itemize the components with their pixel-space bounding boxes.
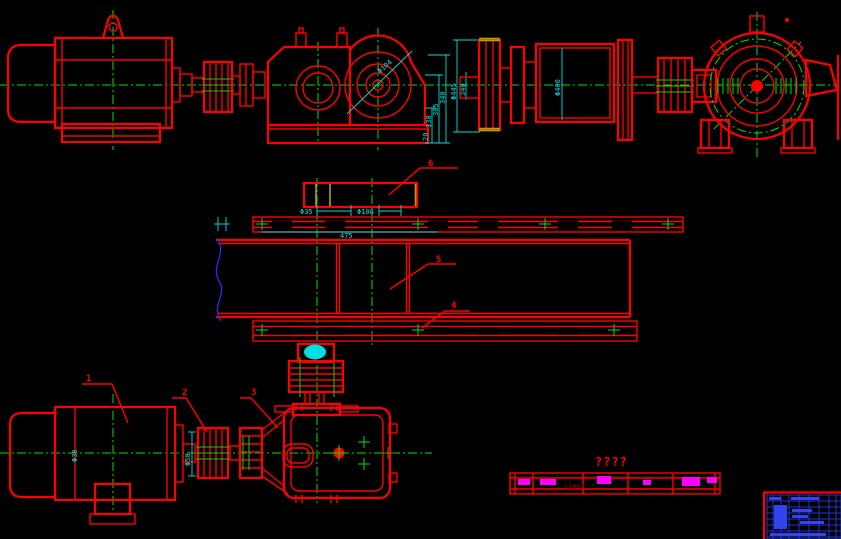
- output-shaft-stack[interactable]: [275, 344, 358, 415]
- break-line[interactable]: [216, 238, 221, 321]
- centerlines[interactable]: [0, 10, 838, 514]
- drum-body[interactable]: Φ400: [536, 44, 614, 122]
- motor-shaft-dim-text[interactable]: Φ38: [71, 449, 79, 462]
- reducer-height-dimensions[interactable]: 130 305 340 20: [422, 55, 450, 143]
- callout-1-label[interactable]: 1: [86, 374, 91, 384]
- right-bearing-plate[interactable]: [618, 40, 632, 140]
- dim-20[interactable]: 20: [422, 133, 430, 141]
- drawing-canvas[interactable]: Φ104 130 305 340 20 Φ445 340: [0, 0, 841, 539]
- drum-dia-dim-text[interactable]: Φ400: [554, 79, 562, 96]
- callout-1[interactable]: 1: [82, 374, 128, 423]
- callout-5-label[interactable]: 5: [436, 255, 441, 265]
- callout-4-label[interactable]: 4: [451, 301, 457, 311]
- callout-6[interactable]: 6: [389, 159, 458, 195]
- missing-glyph-text[interactable]: ????: [595, 455, 628, 469]
- coupling-dim-text[interactable]: Φ50: [184, 453, 192, 466]
- drive-plan-view[interactable]: Φ38 1 Φ50 2 3: [10, 344, 397, 524]
- callout-5[interactable]: 5: [390, 255, 456, 289]
- upper-rail[interactable]: [214, 217, 683, 232]
- conveyor-plan-view[interactable]: 6 Φ35 Φ100: [214, 159, 683, 341]
- hub-dia-text[interactable]: Φ35: [300, 208, 313, 216]
- drum-assembly-view[interactable]: Φ445 340 Φ400: [450, 39, 716, 141]
- callout-4[interactable]: 4: [422, 301, 470, 328]
- pulley-length-text[interactable]: 475: [340, 232, 353, 240]
- motor-mount-plate[interactable]: [304, 183, 417, 207]
- frame-strip-view[interactable]: ???? (100): [510, 455, 720, 494]
- motor-base[interactable]: [62, 124, 160, 142]
- callout-6-label[interactable]: 6: [428, 159, 433, 169]
- motor-side-view[interactable]: [8, 16, 265, 143]
- callout-2-label[interactable]: 2: [182, 388, 187, 398]
- drum-flange-dim-text[interactable]: Φ445: [450, 83, 458, 100]
- top-studs[interactable]: [296, 28, 347, 47]
- dim-340[interactable]: 340: [439, 91, 447, 104]
- strip-dim-text[interactable]: (100): [564, 483, 585, 491]
- dim-305[interactable]: 305: [432, 103, 440, 116]
- cyan-highlight-blob[interactable]: [304, 345, 326, 360]
- lower-rail[interactable]: [253, 321, 637, 341]
- input-coupling[interactable]: [202, 62, 234, 112]
- belt-and-drum[interactable]: [216, 238, 630, 321]
- reducer-bore-dim-text[interactable]: Φ104: [376, 58, 394, 75]
- dim-130[interactable]: 130: [425, 115, 433, 128]
- length-dimension[interactable]: 475: [262, 232, 438, 240]
- title-block-filled-cell: [774, 505, 787, 529]
- shaft-dia-text[interactable]: Φ100: [357, 208, 374, 216]
- callout-3-label[interactable]: 3: [251, 388, 256, 398]
- drum-left-dimensions[interactable]: Φ445 340: [450, 40, 480, 132]
- cad-workspace: Φ104 130 305 340 20 Φ445 340: [0, 0, 841, 539]
- title-block[interactable]: [764, 492, 841, 539]
